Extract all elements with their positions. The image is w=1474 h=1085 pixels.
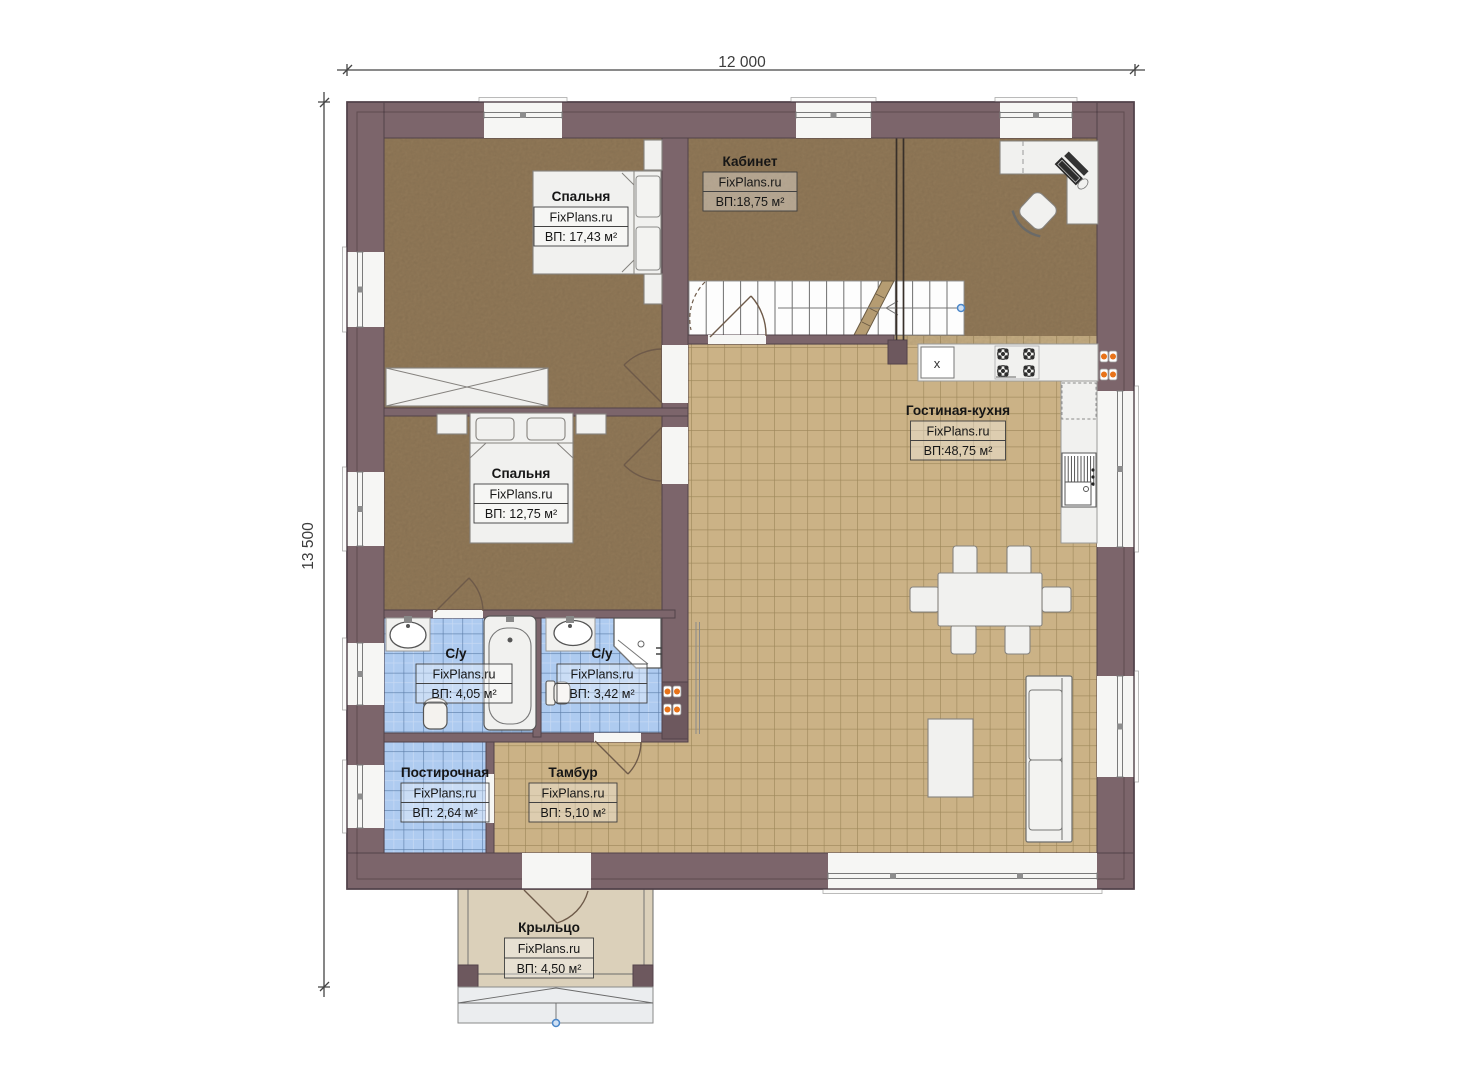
svg-text:ВП: 17,43 м²: ВП: 17,43 м²	[545, 230, 617, 244]
svg-text:FixPlans.ru: FixPlans.ru	[518, 942, 581, 956]
svg-text:ВП: 5,10 м²: ВП: 5,10 м²	[540, 806, 605, 820]
svg-text:ВП: 4,50 м²: ВП: 4,50 м²	[517, 962, 582, 976]
svg-text:FixPlans.ru: FixPlans.ru	[433, 668, 496, 682]
svg-text:Тамбур: Тамбур	[548, 765, 597, 780]
svg-text:Гостиная-кухня: Гостиная-кухня	[906, 403, 1010, 418]
svg-text:ВП:48,75 м²: ВП:48,75 м²	[924, 444, 993, 458]
svg-text:FixPlans.ru: FixPlans.ru	[550, 211, 613, 225]
svg-text:Крыльцо: Крыльцо	[518, 920, 580, 935]
svg-text:ВП: 12,75 м²: ВП: 12,75 м²	[485, 507, 557, 521]
svg-text:FixPlans.ru: FixPlans.ru	[542, 787, 605, 801]
svg-text:ВП: 4,05 м²: ВП: 4,05 м²	[431, 687, 496, 701]
svg-text:13 500: 13 500	[300, 522, 317, 570]
svg-text:Постирочная: Постирочная	[401, 765, 489, 780]
svg-text:С/у: С/у	[445, 646, 467, 661]
svg-text:Спальня: Спальня	[492, 466, 551, 481]
svg-text:FixPlans.ru: FixPlans.ru	[719, 176, 782, 190]
svg-text:Кабинет: Кабинет	[722, 154, 777, 169]
svg-text:x: x	[934, 356, 941, 371]
svg-text:FixPlans.ru: FixPlans.ru	[414, 787, 477, 801]
svg-text:12 000: 12 000	[718, 54, 766, 71]
svg-text:FixPlans.ru: FixPlans.ru	[490, 488, 553, 502]
svg-text:С/у: С/у	[591, 646, 613, 661]
svg-text:ВП: 3,42 м²: ВП: 3,42 м²	[569, 687, 634, 701]
svg-text:Спальня: Спальня	[552, 189, 611, 204]
svg-text:FixPlans.ru: FixPlans.ru	[571, 668, 634, 682]
svg-text:ВП:18,75 м²: ВП:18,75 м²	[716, 195, 785, 209]
svg-text:FixPlans.ru: FixPlans.ru	[927, 425, 990, 439]
svg-text:ВП: 2,64 м²: ВП: 2,64 м²	[412, 806, 477, 820]
